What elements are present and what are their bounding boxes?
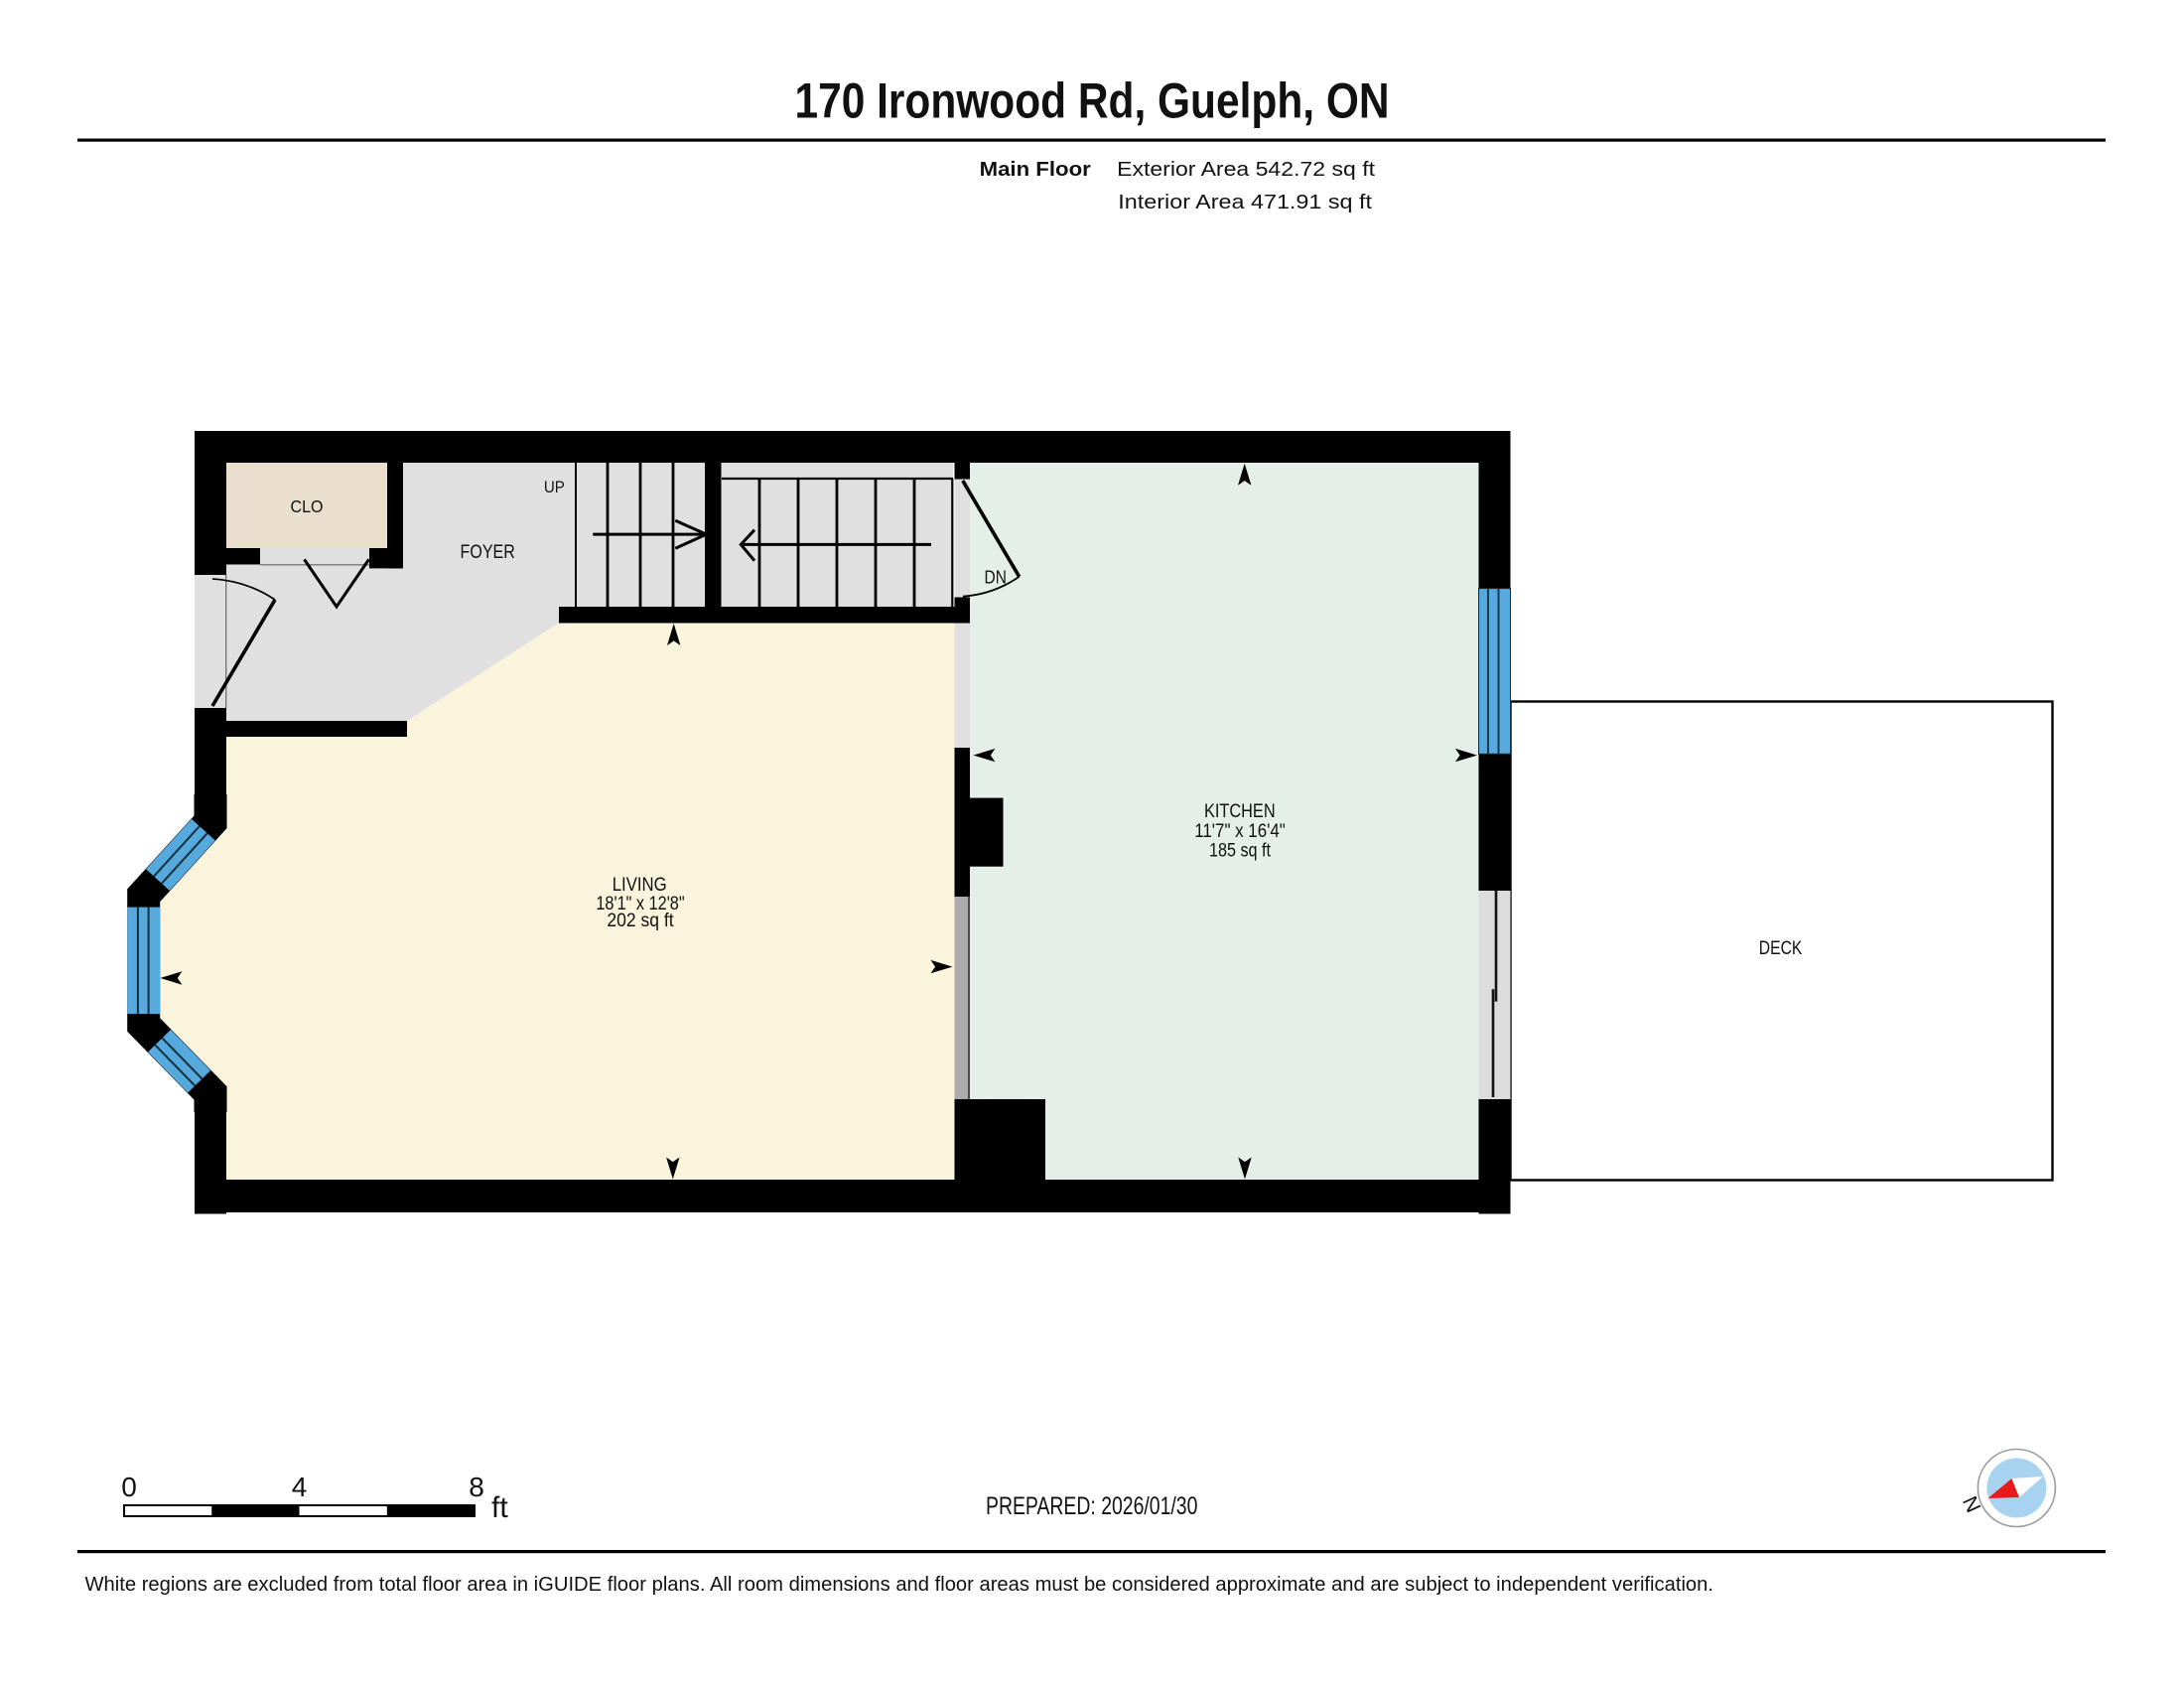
svg-text:Main Floor: Main Floor	[980, 158, 1091, 181]
svg-text:PREPARED: 2026/01/30: PREPARED: 2026/01/30	[986, 1492, 1197, 1520]
svg-text:8: 8	[469, 1472, 484, 1502]
svg-text:4: 4	[292, 1472, 308, 1502]
svg-text:DN: DN	[985, 568, 1007, 588]
svg-text:CLO: CLO	[291, 496, 324, 516]
svg-text:Interior Area 471.91 sq ft: Interior Area 471.91 sq ft	[1118, 191, 1372, 213]
svg-text:Exterior Area 542.72 sq ft: Exterior Area 542.72 sq ft	[1117, 158, 1375, 181]
svg-text:White regions are excluded fro: White regions are excluded from total fl…	[85, 1573, 1714, 1596]
svg-text:170 Ironwood Rd, Guelph, ON: 170 Ironwood Rd, Guelph, ON	[795, 73, 1390, 129]
svg-text:0: 0	[121, 1472, 137, 1502]
svg-text:ft: ft	[491, 1491, 508, 1524]
svg-text:FOYER: FOYER	[461, 542, 515, 563]
svg-text:202 sq ft: 202 sq ft	[607, 910, 674, 931]
svg-text:UP: UP	[544, 478, 565, 496]
svg-text:185 sq ft: 185 sq ft	[1209, 840, 1271, 862]
svg-text:DECK: DECK	[1759, 938, 1803, 959]
svg-text:KITCHEN: KITCHEN	[1204, 800, 1276, 822]
